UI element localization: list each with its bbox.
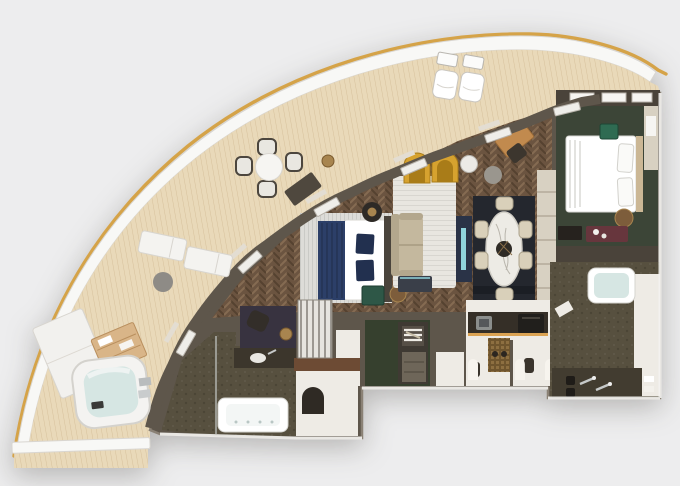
bathroom-right [550, 262, 660, 398]
bedroom2-headboard [636, 136, 643, 212]
bedroom2-shelf-niche [646, 116, 656, 136]
coffee-machine [518, 314, 544, 333]
bistro-chair-s [258, 181, 276, 197]
vanity-sink [250, 353, 266, 363]
wc-fixture-2 [501, 351, 507, 357]
bedroom2-cabinet-band [556, 246, 658, 262]
deck-chair-1 [432, 69, 460, 101]
vanity-right [552, 368, 642, 398]
second-bedroom [556, 90, 660, 262]
dining-chair-w2 [475, 252, 488, 269]
sink-basin [479, 319, 489, 327]
hallway-floor [436, 352, 464, 386]
hot-tub [70, 353, 156, 430]
tub-step-2 [138, 389, 151, 398]
bathtub-right [588, 268, 635, 303]
toilet-right [524, 358, 534, 373]
dining-area [473, 196, 535, 302]
tub-step-1 [139, 377, 152, 386]
pantry [466, 300, 556, 340]
master-headboard [384, 216, 392, 302]
gray-pouf [484, 166, 502, 184]
dining-chair-e2 [519, 252, 532, 269]
towel-1 [644, 376, 654, 382]
nook-lamp [280, 328, 292, 340]
window-3 [632, 93, 652, 102]
hanging-clothes [402, 326, 424, 346]
wc-fixture-1 [492, 351, 498, 357]
closet-drawers [402, 352, 426, 382]
wood-threshold [294, 358, 360, 371]
dining-chair-n [496, 197, 513, 210]
dining-centerpiece [496, 241, 512, 257]
floor-plan-image [0, 0, 680, 486]
bedroom2-shelf-strip [644, 106, 658, 170]
table-lamp [368, 208, 377, 217]
counter-underlight [468, 333, 548, 336]
bistro-chair-n [258, 139, 276, 155]
arched-doorway [302, 387, 324, 414]
bistro-chair-e [286, 153, 302, 171]
window-2 [602, 93, 626, 102]
arch-niche-2 [515, 359, 525, 380]
striped-panels [298, 300, 332, 358]
bedroom2-pouf [615, 209, 633, 227]
master-pillow-2 [356, 260, 375, 282]
plant-box [600, 124, 618, 139]
bedroom2-pillow-2 [617, 178, 633, 207]
bedroom2-tv-cabinet [558, 226, 582, 240]
bistro-table [256, 154, 283, 181]
bedroom2-pillow-1 [617, 144, 634, 173]
flowers-2 [602, 234, 607, 239]
master-pillow-1 [355, 234, 374, 255]
deck-chair-2 [458, 71, 486, 103]
sofa [391, 213, 423, 277]
dining-chair-e1 [519, 221, 532, 238]
dining-chair-w1 [475, 221, 488, 238]
arch-niche-1 [468, 359, 478, 380]
dining-chair-s [496, 288, 513, 301]
bistro-chair-w [236, 157, 252, 175]
towel-2 [644, 386, 654, 392]
bathtub-left [218, 398, 288, 432]
green-marble-nightstand [362, 286, 384, 305]
maroon-dresser [586, 226, 628, 242]
drum-side-table [461, 156, 478, 173]
floor-lamp [322, 155, 334, 167]
tub-control [91, 401, 104, 409]
flowers [593, 229, 599, 235]
floor-plan-canvas [0, 0, 680, 486]
nook-rug [240, 306, 296, 348]
lounger-side-table [153, 272, 173, 292]
tv-screen [461, 228, 466, 270]
